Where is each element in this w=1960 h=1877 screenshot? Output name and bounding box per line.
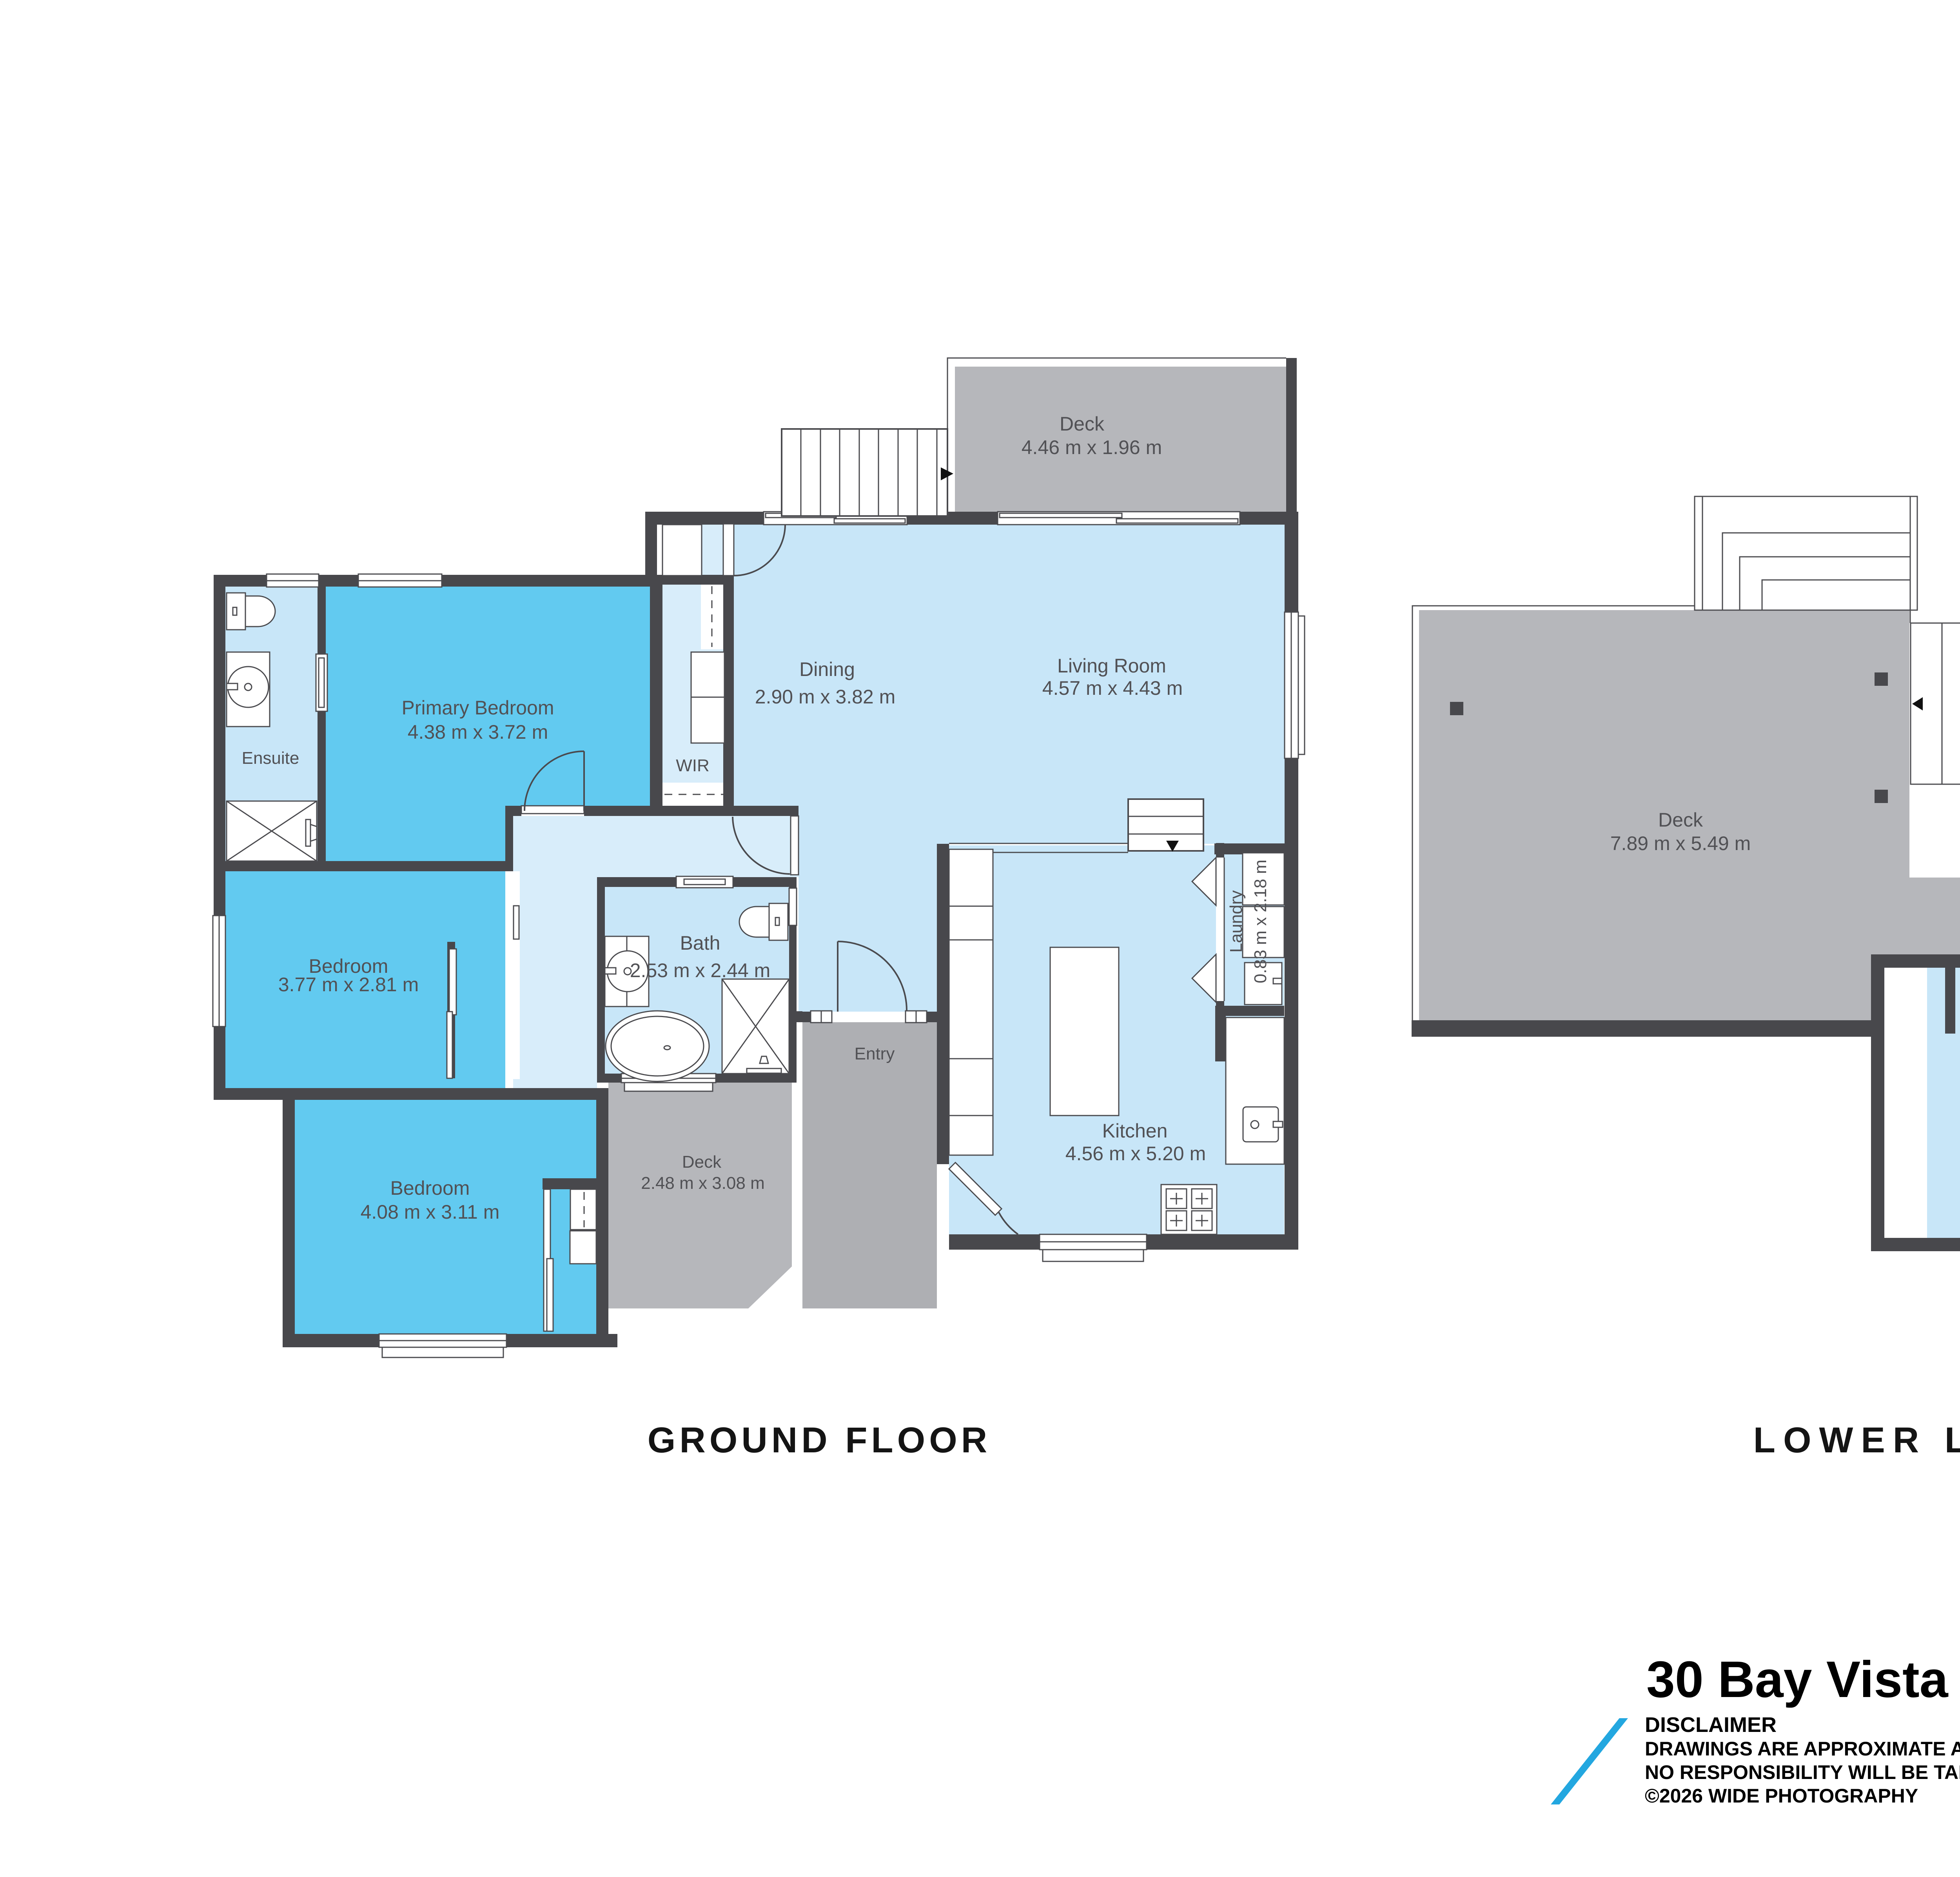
- svg-text:Bath: Bath: [680, 932, 720, 954]
- svg-text:2.48 m x 3.08 m: 2.48 m x 3.08 m: [641, 1174, 764, 1193]
- svg-text:Deck: Deck: [682, 1152, 722, 1172]
- svg-text:Living Room: Living Room: [1057, 655, 1166, 677]
- svg-text:Ensuite: Ensuite: [242, 749, 299, 768]
- svg-text:DISCLAIMER: DISCLAIMER: [1645, 1713, 1777, 1737]
- svg-text:4.08 m x 3.11 m: 4.08 m x 3.11 m: [361, 1201, 500, 1223]
- svg-text:Dining: Dining: [799, 658, 855, 680]
- svg-text:Bedroom: Bedroom: [390, 1177, 470, 1199]
- svg-text:LOWER LEVEL: LOWER LEVEL: [1753, 1420, 1960, 1460]
- svg-text:2.90 m x 3.82 m: 2.90 m x 3.82 m: [755, 686, 896, 708]
- svg-text:©2026 WIDE PHOTOGRAPHY: ©2026 WIDE PHOTOGRAPHY: [1645, 1785, 1918, 1807]
- svg-text:Entry: Entry: [855, 1044, 895, 1063]
- svg-text:NO RESPONSIBILITY WILL BE TAKE: NO RESPONSIBILITY WILL BE TAKEN FOR ANY …: [1645, 1761, 1960, 1783]
- svg-text:2.53 m x 2.44 m: 2.53 m x 2.44 m: [630, 959, 771, 981]
- svg-text:Kitchen: Kitchen: [1102, 1120, 1168, 1142]
- svg-text:DRAWINGS ARE APPROXIMATE AND F: DRAWINGS ARE APPROXIMATE AND FOR ILLUSTR…: [1645, 1738, 1960, 1760]
- svg-text:7.89 m x 5.49 m: 7.89 m x 5.49 m: [1610, 832, 1751, 854]
- svg-text:Laundry: Laundry: [1227, 890, 1246, 952]
- svg-text:3.77 m x 2.81 m: 3.77 m x 2.81 m: [278, 974, 419, 996]
- svg-text:30 Bay Vista Drive, Red Beach: 30 Bay Vista Drive, Red Beach: [1646, 1650, 1960, 1708]
- svg-text:0.83 m x 2.18 m: 0.83 m x 2.18 m: [1251, 859, 1270, 983]
- svg-text:Deck: Deck: [1658, 809, 1703, 831]
- svg-text:4.38 m x 3.72 m: 4.38 m x 3.72 m: [408, 721, 548, 743]
- svg-text:4.56 m x 5.20 m: 4.56 m x 5.20 m: [1065, 1143, 1206, 1165]
- svg-text:WIR: WIR: [676, 756, 710, 775]
- svg-text:Deck: Deck: [1060, 413, 1105, 435]
- svg-text:4.57 m x 4.43 m: 4.57 m x 4.43 m: [1042, 677, 1183, 699]
- svg-text:GROUND FLOOR: GROUND FLOOR: [648, 1420, 991, 1460]
- svg-text:Primary Bedroom: Primary Bedroom: [402, 697, 554, 719]
- svg-text:4.46 m x 1.96 m: 4.46 m x 1.96 m: [1022, 436, 1162, 458]
